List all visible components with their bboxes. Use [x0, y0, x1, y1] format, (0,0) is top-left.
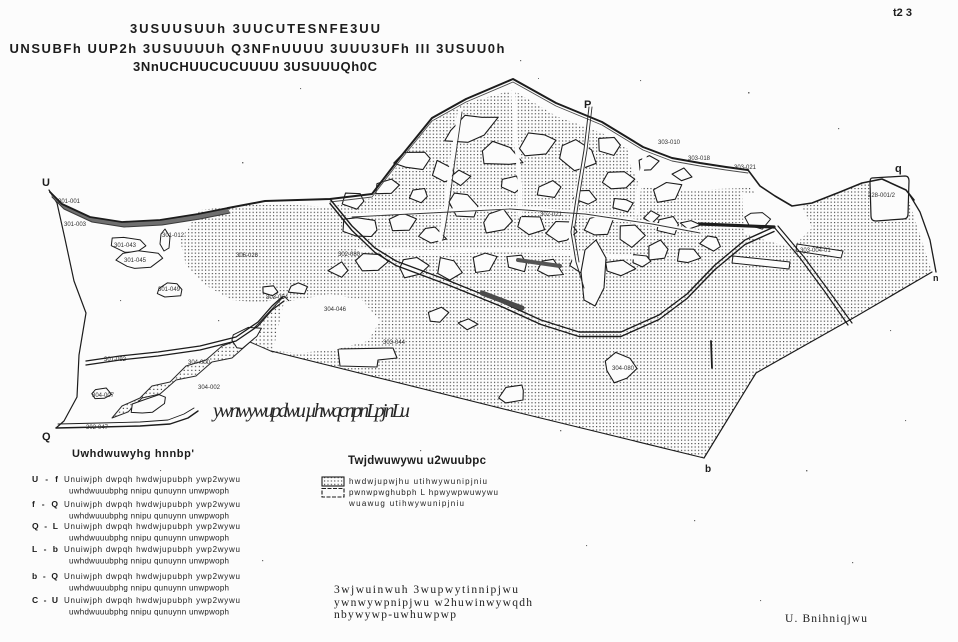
- svg-text:C-U: C-U: [32, 595, 58, 605]
- svg-text:303-021: 303-021: [734, 165, 757, 171]
- svg-text:303-054: 303-054: [266, 295, 289, 301]
- svg-text:Unuiwjph dwpqh hwdwjupubph ywp: Unuiwjph dwpqh hwdwjupubph ywp2wywu: [64, 596, 240, 605]
- svg-text:nbywywp-uwhuwpwp: nbywywp-uwhuwpwp: [334, 609, 456, 621]
- svg-text:304-046: 304-046: [324, 307, 347, 313]
- svg-text:301-049: 301-049: [158, 287, 181, 293]
- svg-text:uwhdwuuubphg nnipu qunuynn unw: uwhdwuuubphg nnipu qunuynn unwpwoph: [69, 557, 229, 566]
- svg-text:3NnUCHUUCUCUUUU 3USUUUQh0C: 3NnUCHUUCUCUUUU 3USUUUQh0C: [133, 59, 378, 74]
- svg-text:303-018: 303-018: [688, 156, 711, 162]
- svg-text:U: U: [42, 177, 50, 189]
- svg-text:302-047: 302-047: [86, 425, 109, 431]
- svg-text:301-092: 301-092: [104, 357, 127, 363]
- svg-text:Unuiwjph dwpqh hwdwjupubph ywp: Unuiwjph dwpqh hwdwjupubph ywp2wywu: [64, 572, 240, 581]
- svg-text:uwhdwuuubphg nnipu qunuynn unw: uwhdwuuubphg nnipu qunuynn unwpwoph: [69, 512, 229, 521]
- svg-text:Uwhdwuwyhg hnnbp': Uwhdwuwyhg hnnbp': [72, 448, 194, 460]
- svg-text:304-080: 304-080: [612, 366, 635, 372]
- svg-text:Unuiwjph dwpqh hwdwjupubph ywp: Unuiwjph dwpqh hwdwjupubph ywp2wywu: [64, 522, 240, 531]
- svg-text:304-000: 304-000: [188, 360, 211, 366]
- svg-text:b: b: [705, 464, 711, 475]
- svg-text:P: P: [584, 99, 591, 111]
- svg-text:q: q: [895, 163, 902, 175]
- svg-text:228-001/2: 228-001/2: [868, 193, 896, 199]
- svg-text:302-080: 302-080: [338, 252, 361, 258]
- svg-text:301-045: 301-045: [124, 258, 147, 264]
- svg-text:hwdwjupwjhu utihwywunipjniu: hwdwjupwjhu utihwywunipjniu: [349, 477, 487, 486]
- svg-text:U-f: U-f: [32, 474, 58, 484]
- svg-text:301-001: 301-001: [58, 199, 81, 205]
- svg-text:n: n: [933, 273, 939, 283]
- svg-text:UNSUBFh UUP2h 3USUUUUh Q3NFnUU: UNSUBFh UUP2h 3USUUUUh Q3NFnUUUU 3UUU3UF…: [10, 41, 505, 56]
- svg-text:b-Q: b-Q: [32, 571, 58, 581]
- svg-text:uwhdwuuubphg nnipu qunuynn unw: uwhdwuuubphg nnipu qunuynn unwpwoph: [69, 534, 229, 543]
- svg-text:Twjdwuwywu u2wuubpc: Twjdwuwywu u2wuubpc: [348, 455, 487, 467]
- svg-text:301-043: 301-043: [114, 243, 137, 249]
- svg-text:306-028: 306-028: [236, 253, 259, 259]
- svg-text:302-021: 302-021: [540, 212, 563, 218]
- svg-text:pwnwpwghubph L hpwywpwuwywu: pwnwpwghubph L hpwywpwuwywu: [349, 488, 498, 497]
- svg-text:Unuiwjph dwpqh hwdwjupubph ywp: Unuiwjph dwpqh hwdwjupubph ywp2wywu: [64, 545, 240, 554]
- svg-text:L-b: L-b: [32, 544, 58, 554]
- svg-text:Unuiwjph dwpqh hwdwjupubph ywp: Unuiwjph dwpqh hwdwjupubph ywp2wywu: [64, 500, 240, 509]
- svg-text:ywnwywpnipjwu w2huwinwywqdh: ywnwywpnipjwu w2huwinwywqdh: [334, 597, 532, 609]
- svg-text:3wjwuinwuh 3wupwytinnipjwu: 3wjwuinwuh 3wupwytinnipjwu: [334, 584, 518, 596]
- svg-text:303-010: 303-010: [658, 140, 681, 146]
- svg-text:ywnwywupdwu µhwqcnpnLpjnLu: ywnwywupdwu µhwqcnpnLpjnLu: [211, 400, 410, 422]
- svg-text:3USUUSUUh 3UUCUTESNFE3UU: 3USUUSUUh 3UUCUTESNFE3UU: [130, 21, 380, 36]
- svg-text:304-007: 304-007: [92, 393, 115, 399]
- svg-text:303-004-01: 303-004-01: [800, 248, 831, 254]
- svg-text:uwhdwuuubphg nnipu qunuynn unw: uwhdwuuubphg nnipu qunuynn unwpwoph: [69, 584, 229, 593]
- svg-text:301-012: 301-012: [162, 233, 185, 239]
- svg-text:Unuiwjph dwpqh hwdwjupubph ywp: Unuiwjph dwpqh hwdwjupubph ywp2wywu: [64, 475, 240, 484]
- svg-text:303-044: 303-044: [383, 340, 406, 346]
- svg-text:Q: Q: [42, 431, 51, 443]
- svg-text:Q-L: Q-L: [32, 521, 58, 531]
- svg-text:301-003: 301-003: [64, 222, 87, 228]
- svg-text:t2 3: t2 3: [893, 7, 912, 19]
- svg-text:uwhdwuuubphg nnipu qunuynn unw: uwhdwuuubphg nnipu qunuynn unwpwoph: [69, 608, 229, 617]
- svg-text:304-002: 304-002: [198, 385, 221, 391]
- svg-text:uwhdwuuubphg nnipu qunuynn unw: uwhdwuuubphg nnipu qunuynn unwpwoph: [69, 487, 229, 496]
